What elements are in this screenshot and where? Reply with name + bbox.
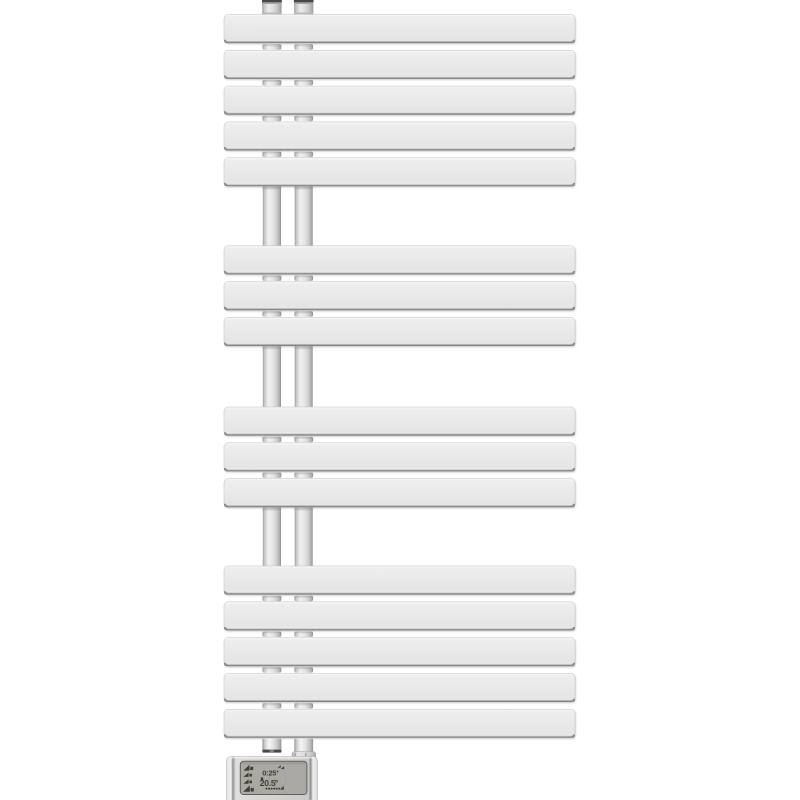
svg-text:0:25: 0:25 xyxy=(262,768,276,777)
